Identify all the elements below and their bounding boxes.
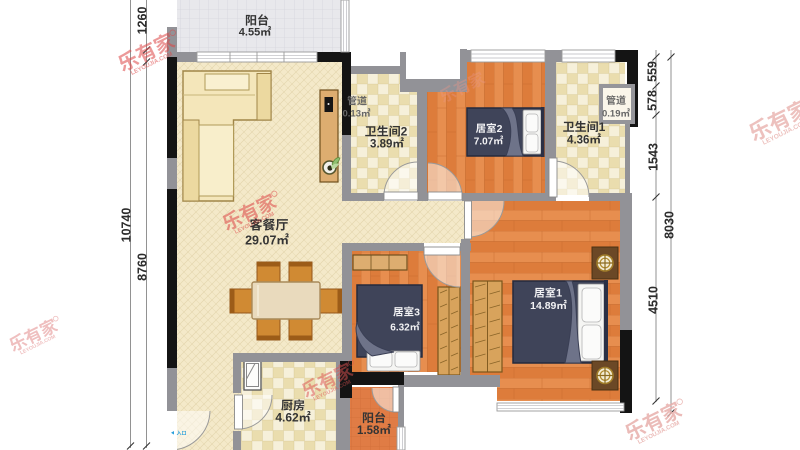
svg-text:1: 1	[556, 288, 562, 300]
svg-text:2: 2	[401, 125, 408, 139]
svg-text:1: 1	[599, 120, 606, 134]
svg-text:9: 9	[551, 300, 557, 312]
svg-text:2: 2	[404, 322, 410, 333]
svg-text:8: 8	[373, 425, 380, 437]
svg-text:1260: 1260	[136, 7, 150, 35]
svg-text:1543: 1543	[647, 143, 661, 171]
svg-text:578: 578	[646, 90, 660, 111]
svg-text:3: 3	[414, 306, 420, 318]
svg-text:5: 5	[254, 27, 260, 39]
svg-text:9: 9	[252, 233, 259, 247]
svg-text:10740: 10740	[120, 208, 134, 243]
svg-text:6: 6	[583, 134, 589, 146]
svg-text:7: 7	[488, 136, 494, 147]
svg-text:559: 559	[646, 61, 660, 82]
svg-text:0: 0	[262, 233, 269, 247]
svg-text:2: 2	[497, 123, 503, 135]
svg-text:3: 3	[356, 109, 361, 120]
svg-text:7: 7	[269, 233, 276, 247]
svg-text:9: 9	[386, 138, 392, 150]
svg-text:8760: 8760	[136, 253, 150, 281]
svg-text:2: 2	[245, 233, 252, 247]
svg-text:8030: 8030	[663, 211, 677, 239]
svg-text:2: 2	[292, 411, 299, 425]
svg-text:9: 9	[615, 109, 620, 120]
svg-text:4510: 4510	[647, 286, 661, 314]
